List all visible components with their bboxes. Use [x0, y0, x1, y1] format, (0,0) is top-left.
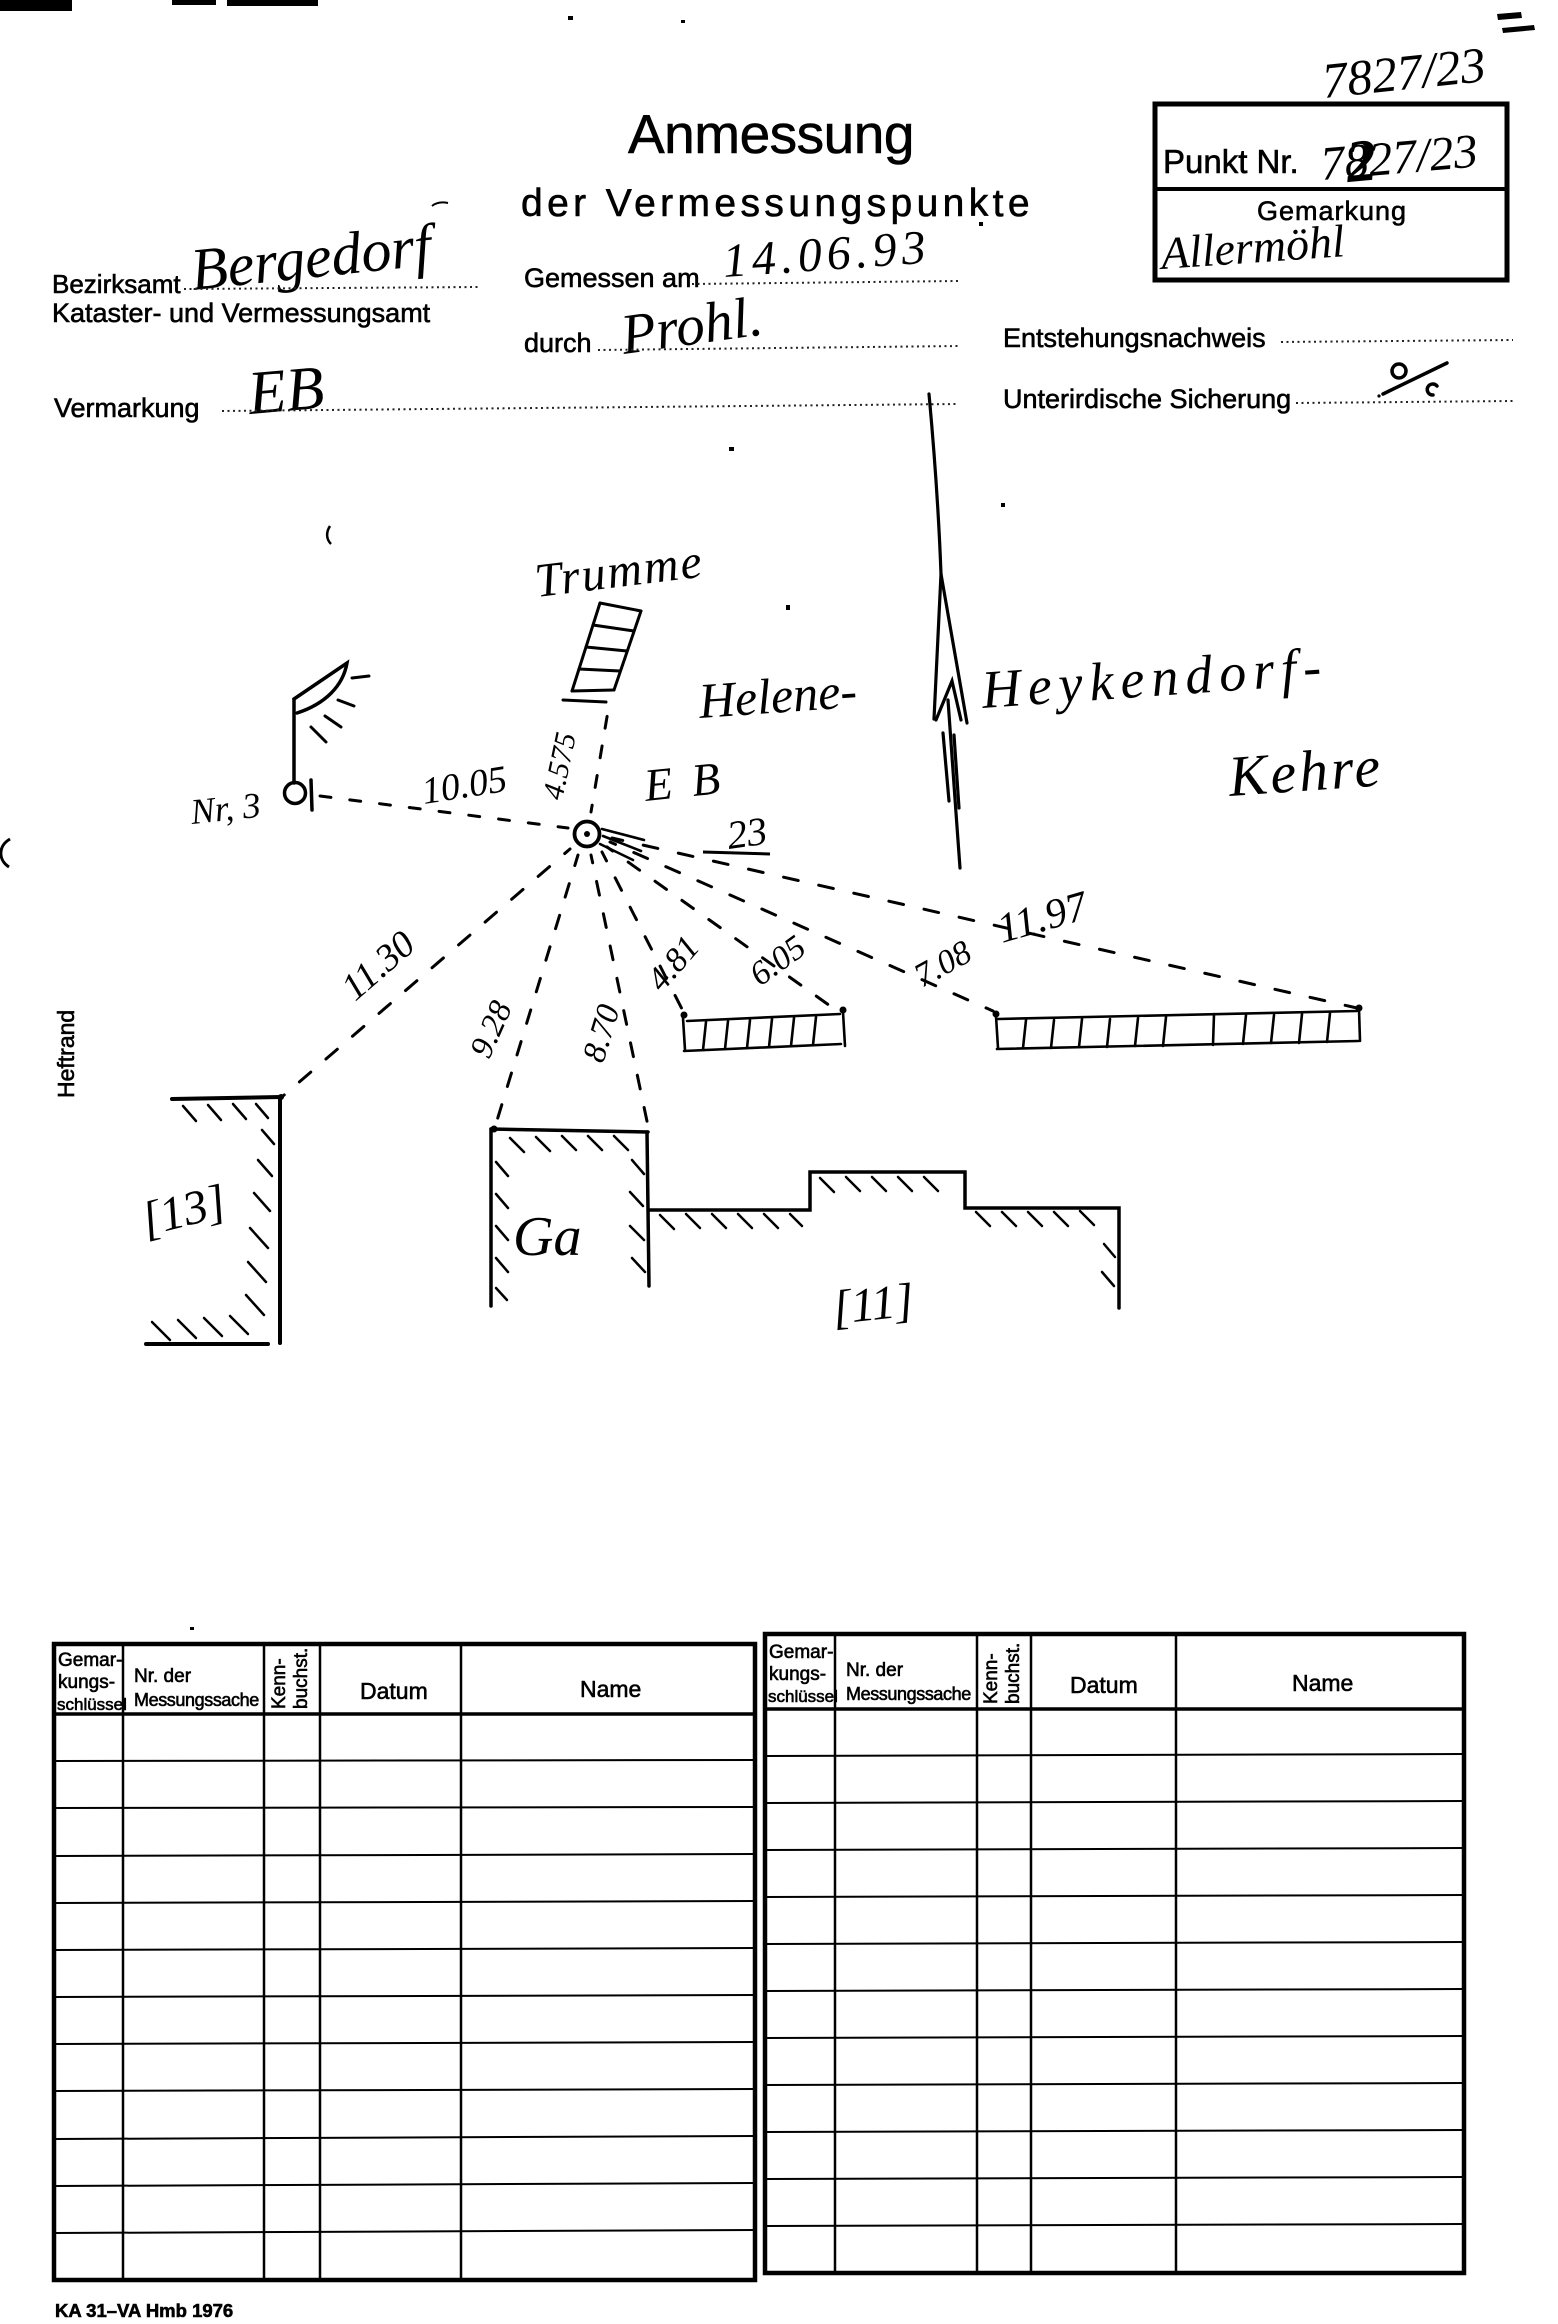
svg-text:Bezirksamt: Bezirksamt	[52, 269, 181, 299]
svg-text:Helene-: Helene-	[696, 662, 859, 729]
svg-text:Kataster- und Vermessungsamt: Kataster- und Vermessungsamt	[52, 298, 431, 328]
svg-text:Messungssache: Messungssache	[134, 1690, 259, 1710]
svg-text:kungs-: kungs-	[58, 1672, 115, 1693]
svg-text:Punkt Nr.: Punkt Nr.	[1163, 143, 1299, 180]
svg-text:4.575: 4.575	[537, 730, 583, 803]
svg-text:7.08: 7.08	[908, 934, 978, 995]
svg-text:Heftrand: Heftrand	[53, 1010, 79, 1098]
svg-text:14.06.93: 14.06.93	[721, 221, 932, 288]
svg-text:Nr. der: Nr. der	[846, 1660, 904, 1681]
svg-text:Ga: Ga	[513, 1206, 581, 1268]
svg-text:Name: Name	[580, 1676, 641, 1702]
svg-text:schlüssel: schlüssel	[57, 1695, 127, 1714]
svg-text:7827/23: 7827/23	[1319, 36, 1488, 109]
svg-text:Gemessen am: Gemessen am	[524, 263, 700, 293]
svg-text:Kenn-: Kenn-	[981, 1653, 1002, 1704]
svg-text:buchst.: buchst.	[1003, 1643, 1024, 1704]
svg-text:kungs-: kungs-	[769, 1664, 826, 1685]
svg-text:Datum: Datum	[1070, 1672, 1138, 1698]
svg-text:8.70: 8.70	[576, 1000, 627, 1066]
svg-text:7827/23: 7827/23	[1318, 124, 1479, 191]
svg-text:11.97: 11.97	[992, 883, 1094, 953]
svg-text:23: 23	[724, 808, 770, 858]
svg-text:4.81: 4.81	[640, 929, 707, 998]
svg-text:Messungssache: Messungssache	[846, 1684, 971, 1704]
svg-text:Allermöhl: Allermöhl	[1156, 215, 1346, 279]
svg-text:durch: durch	[524, 328, 592, 358]
svg-text:buchst.: buchst.	[291, 1648, 312, 1709]
svg-text:EB: EB	[244, 354, 326, 428]
svg-text:schlüssel: schlüssel	[768, 1687, 838, 1706]
svg-text:Nr, 3: Nr, 3	[188, 785, 263, 832]
svg-text:9.28: 9.28	[463, 995, 520, 1063]
svg-text:Heykendorf-: Heykendorf-	[979, 636, 1330, 720]
svg-text:Name: Name	[1292, 1670, 1353, 1696]
svg-text:[13]: [13]	[136, 1175, 232, 1247]
svg-text:Bergedorf: Bergedorf	[187, 211, 441, 303]
svg-text:Trumme: Trumme	[532, 535, 707, 608]
svg-text:2: 2	[1342, 127, 1379, 195]
svg-text:Prohl.: Prohl.	[616, 285, 766, 367]
svg-text:Gemar-: Gemar-	[769, 1642, 833, 1663]
svg-text:[11]: [11]	[830, 1274, 917, 1335]
svg-text:Vermarkung: Vermarkung	[54, 393, 200, 423]
svg-text:Kenn-: Kenn-	[269, 1658, 290, 1709]
svg-text:Unterirdische Sicherung: Unterirdische Sicherung	[1003, 384, 1291, 414]
svg-text:Anmessung: Anmessung	[628, 103, 914, 165]
svg-text:KA 31–VA Hmb 1976: KA 31–VA Hmb 1976	[55, 2300, 233, 2321]
svg-text:Gemar-: Gemar-	[58, 1650, 122, 1671]
svg-text:Nr. der: Nr. der	[134, 1666, 192, 1687]
svg-text:Entstehungsnachweis: Entstehungsnachweis	[1003, 323, 1266, 353]
svg-text:E B: E B	[641, 752, 727, 811]
svg-text:der Vermessungspunkte: der Vermessungspunkte	[521, 182, 1034, 225]
svg-text:10.05: 10.05	[419, 758, 510, 813]
svg-text:Datum: Datum	[360, 1678, 428, 1704]
svg-text:11.30: 11.30	[333, 923, 423, 1009]
svg-text:6.05: 6.05	[743, 929, 813, 994]
svg-text:Kehre: Kehre	[1225, 733, 1385, 809]
